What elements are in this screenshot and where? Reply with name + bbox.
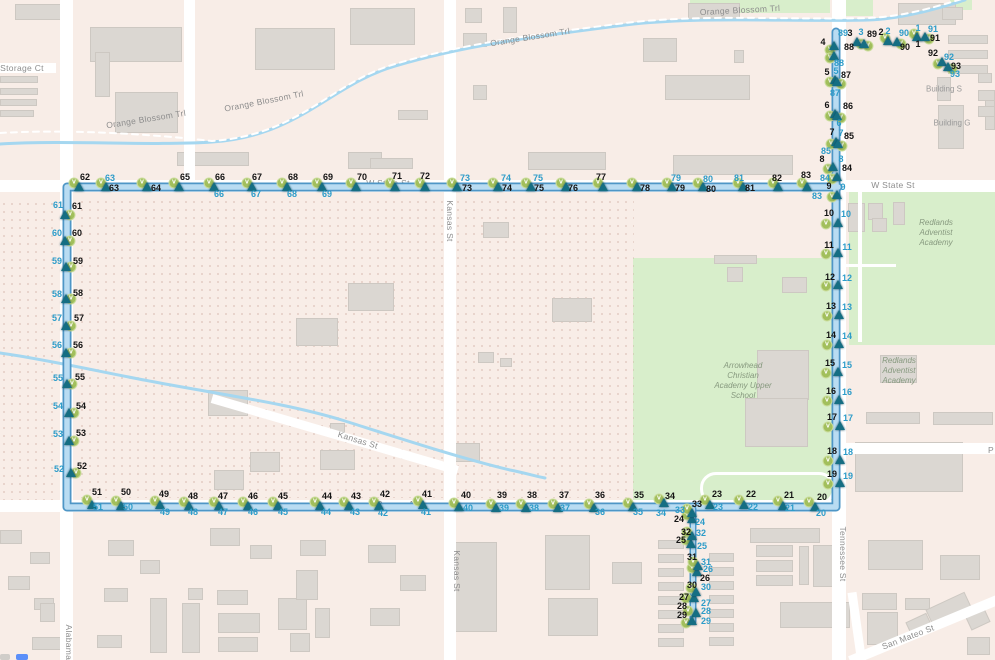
- building: [658, 582, 684, 591]
- waypoint-label-black-6: 6: [824, 100, 829, 110]
- waypoint-label-black-14: 14: [826, 330, 836, 340]
- waypoint-label-black-19: 19: [827, 469, 837, 479]
- waypoint-triangle-29[interactable]: [687, 616, 697, 625]
- waypoint-label-blue-25: 25: [697, 541, 707, 551]
- building: [948, 35, 988, 44]
- building: [709, 623, 734, 632]
- building: [370, 158, 413, 169]
- waypoint-label-blue-14: 14: [842, 331, 852, 341]
- waypoint-label-blue-10: 10: [841, 209, 851, 219]
- building: [140, 560, 160, 574]
- waypoint-label-blue-84: 84: [820, 173, 830, 183]
- building: [400, 575, 426, 591]
- building: [290, 633, 310, 652]
- building: [942, 7, 963, 20]
- waypoint-label-black-33: 33: [692, 499, 702, 509]
- street-label: Kansas St: [452, 550, 462, 591]
- building: [8, 576, 30, 590]
- waypoint-label-black-20: 20: [817, 492, 827, 502]
- building: [866, 412, 920, 424]
- waypoint-label-black-39: 39: [497, 490, 507, 500]
- road: [840, 443, 995, 454]
- terrain-dots: [78, 198, 634, 498]
- waypoint-label-black-45: 45: [278, 491, 288, 501]
- waypoint-label-black-31: 31: [687, 552, 697, 562]
- building: [188, 588, 203, 600]
- waypoint-triangle-53[interactable]: [64, 436, 74, 445]
- building-label: Building S: [926, 85, 962, 94]
- building: [709, 581, 734, 590]
- building: [548, 598, 598, 636]
- waypoint-triangle-8[interactable]: [828, 162, 838, 171]
- waypoint-label-black-62: 62: [80, 172, 90, 182]
- waypoint-label-blue-43: 43: [350, 507, 360, 517]
- building: [756, 560, 793, 572]
- waypoint-label-black-68: 68: [288, 172, 298, 182]
- waypoint-label-blue-32: 32: [696, 528, 706, 538]
- waypoint-label-black-77: 77: [596, 172, 606, 182]
- camera-marker-11[interactable]: v: [821, 249, 832, 260]
- waypoint-label-blue-31: 31: [701, 557, 711, 567]
- waypoint-label-blue-85: 85: [821, 146, 831, 156]
- waypoint-label-blue-90: 90: [899, 28, 909, 38]
- camera-marker-16[interactable]: v: [822, 396, 833, 407]
- building: [465, 8, 482, 23]
- waypoint-label-blue-79: 79: [671, 173, 681, 183]
- waypoint-label-black-78: 78: [640, 183, 650, 193]
- waypoint-label-blue-23: 23: [713, 502, 723, 512]
- waypoint-label-black-29: 29: [677, 610, 687, 620]
- waypoint-label-black-90: 90: [900, 42, 910, 52]
- building: [978, 90, 995, 101]
- building: [104, 588, 128, 602]
- street-label: Orange Blossom Trl: [224, 88, 305, 113]
- park-area: [845, 0, 873, 16]
- street-label: Alabama St: [64, 625, 74, 660]
- building: [210, 528, 240, 546]
- waypoint-triangle-83[interactable]: [802, 182, 812, 191]
- building: [727, 267, 743, 282]
- waypoint-label-black-30: 30: [687, 580, 697, 590]
- building: [709, 637, 734, 646]
- waypoint-label-blue-51: 51: [93, 502, 103, 512]
- waypoint-label-black-82: 82: [772, 173, 782, 183]
- building: [868, 540, 923, 570]
- waypoint-label-blue-9: 9: [840, 182, 845, 192]
- waypoint-triangle-82[interactable]: [773, 182, 783, 191]
- road: [858, 192, 862, 342]
- building: [528, 152, 606, 170]
- waypoint-label-blue-69: 69: [322, 189, 332, 199]
- building: [552, 298, 592, 322]
- building: [398, 110, 428, 120]
- building: [782, 277, 807, 293]
- waypoint-label-black-34: 34: [665, 491, 675, 501]
- waypoint-label-black-61: 61: [72, 201, 82, 211]
- building: [0, 99, 37, 106]
- waypoint-label-black-63: 63: [109, 183, 119, 193]
- place-label: RedlandsAdventistAcademy: [882, 356, 916, 386]
- building: [745, 398, 808, 447]
- waypoint-triangle-59[interactable]: [61, 262, 71, 271]
- waypoint-label-black-64: 64: [151, 183, 161, 193]
- waypoint-label-black-22: 22: [746, 489, 756, 499]
- waypoint-label-blue-60: 60: [52, 228, 62, 238]
- waypoint-label-blue-34: 34: [656, 508, 666, 518]
- building: [483, 222, 509, 238]
- building: [750, 528, 820, 543]
- waypoint-label-blue-16: 16: [842, 387, 852, 397]
- camera-marker-13[interactable]: v: [822, 311, 833, 322]
- waypoint-label-blue-2: 2: [885, 26, 890, 36]
- waypoint-triangle-25[interactable]: [686, 539, 696, 548]
- waypoint-label-black-73: 73: [462, 183, 472, 193]
- waypoint-label-black-56: 56: [73, 340, 83, 350]
- waypoint-label-blue-7: 7: [838, 128, 843, 138]
- street-label: Storage Ct: [0, 63, 44, 73]
- waypoint-label-blue-46: 46: [248, 507, 258, 517]
- waypoint-label-black-11: 11: [824, 240, 834, 250]
- waypoint-triangle-52[interactable]: [66, 468, 76, 477]
- building: [296, 318, 338, 346]
- partial-ui-chip: [16, 654, 28, 660]
- waypoint-label-black-23: 23: [712, 489, 722, 499]
- waypoint-label-blue-24: 24: [695, 517, 705, 527]
- waypoint-triangle-89[interactable]: [859, 39, 869, 48]
- waypoint-label-blue-29: 29: [701, 616, 711, 626]
- waypoint-label-black-70: 70: [357, 172, 367, 182]
- building: [940, 555, 980, 580]
- waypoint-label-black-74: 74: [502, 183, 512, 193]
- waypoint-label-black-17: 17: [827, 412, 837, 422]
- building: [320, 450, 355, 470]
- waypoint-label-blue-58: 58: [52, 289, 62, 299]
- waypoint-label-black-37: 37: [559, 490, 569, 500]
- waypoint-label-blue-37: 37: [560, 503, 570, 513]
- building: [350, 8, 415, 45]
- waypoint-label-black-1: 1: [915, 39, 920, 49]
- building: [278, 598, 307, 630]
- waypoint-label-blue-28: 28: [701, 606, 711, 616]
- waypoint-label-blue-22: 22: [748, 502, 758, 512]
- building: [218, 613, 260, 633]
- road: [838, 264, 896, 267]
- building: [658, 638, 684, 647]
- waypoint-label-black-43: 43: [351, 491, 361, 501]
- waypoint-label-black-58: 58: [73, 288, 83, 298]
- waypoint-label-blue-15: 15: [842, 360, 852, 370]
- waypoint-label-blue-50: 50: [123, 502, 133, 512]
- building: [545, 535, 590, 590]
- waypoint-label-blue-91: 91: [928, 24, 938, 34]
- waypoint-label-black-80: 80: [706, 184, 716, 194]
- building: [296, 570, 318, 600]
- waypoint-label-blue-40: 40: [463, 503, 473, 513]
- building: [348, 283, 394, 311]
- waypoint-label-black-67: 67: [252, 172, 262, 182]
- waypoint-label-blue-73: 73: [460, 173, 470, 183]
- waypoint-triangle-84[interactable]: [832, 172, 842, 181]
- waypoint-triangle-73[interactable]: [452, 182, 462, 191]
- waypoint-label-blue-89: 89: [838, 28, 848, 38]
- waypoint-label-black-53: 53: [76, 428, 86, 438]
- waypoint-triangle-57[interactable]: [61, 321, 71, 330]
- waypoint-label-black-55: 55: [75, 372, 85, 382]
- building: [478, 352, 494, 363]
- waypoint-label-black-91: 91: [930, 33, 940, 43]
- waypoint-label-black-57: 57: [74, 313, 84, 323]
- waypoint-label-black-24: 24: [674, 514, 684, 524]
- street-label: W State St: [871, 180, 915, 190]
- waypoint-label-blue-66: 66: [214, 189, 224, 199]
- waypoint-label-blue-3: 3: [858, 27, 863, 37]
- waypoint-triangle-70[interactable]: [351, 182, 361, 191]
- building: [658, 568, 684, 577]
- waypoint-label-black-2: 2: [878, 27, 883, 37]
- waypoint-label-blue-83: 83: [812, 191, 822, 201]
- building: [872, 218, 887, 232]
- waypoint-label-blue-81: 81: [734, 173, 744, 183]
- waypoint-label-black-79: 79: [675, 183, 685, 193]
- building: [0, 88, 38, 95]
- waypoint-label-blue-12: 12: [842, 273, 852, 283]
- waypoint-label-black-84: 84: [842, 163, 852, 173]
- waypoint-triangle-71[interactable]: [390, 182, 400, 191]
- waypoint-label-blue-68: 68: [287, 189, 297, 199]
- building: [0, 76, 38, 83]
- waypoint-label-blue-6: 6: [836, 118, 841, 128]
- building: [463, 33, 487, 47]
- building: [368, 545, 396, 563]
- waypoint-label-black-89: 89: [867, 29, 877, 39]
- waypoint-label-black-32: 32: [681, 527, 691, 537]
- camera-marker-17[interactable]: v: [823, 422, 834, 433]
- building: [665, 75, 750, 100]
- waypoint-label-black-42: 42: [380, 489, 390, 499]
- waypoint-label-black-76: 76: [568, 183, 578, 193]
- waypoint-label-blue-44: 44: [321, 507, 331, 517]
- waypoint-label-blue-21: 21: [785, 503, 795, 513]
- building: [933, 412, 993, 425]
- waypoint-label-black-88: 88: [844, 42, 854, 52]
- waypoint-triangle-56[interactable]: [61, 348, 71, 357]
- waypoint-label-black-3: 3: [847, 28, 852, 38]
- waypoint-label-black-16: 16: [826, 386, 836, 396]
- building: [473, 85, 487, 100]
- waypoint-label-blue-75: 75: [533, 173, 543, 183]
- waypoint-label-black-44: 44: [322, 491, 332, 501]
- waypoint-label-blue-59: 59: [52, 256, 62, 266]
- building: [799, 546, 809, 585]
- building: [250, 545, 272, 559]
- waypoint-label-blue-57: 57: [52, 313, 62, 323]
- building: [0, 110, 34, 117]
- building: [370, 608, 400, 626]
- building: [40, 603, 55, 622]
- building: [734, 50, 744, 63]
- waypoint-label-blue-63: 63: [105, 173, 115, 183]
- building: [709, 595, 734, 604]
- waypoint-triangle-62[interactable]: [74, 182, 84, 191]
- building: [97, 635, 122, 648]
- camera-marker-10[interactable]: v: [821, 219, 832, 230]
- waypoint-label-blue-61: 61: [53, 200, 63, 210]
- waypoint-label-blue-35: 35: [633, 507, 643, 517]
- waypoint-label-blue-13: 13: [842, 302, 852, 312]
- road: [184, 0, 195, 185]
- building: [893, 202, 905, 225]
- waypoint-label-blue-54: 54: [53, 401, 63, 411]
- building: [978, 73, 992, 83]
- street-label: P: [988, 445, 994, 455]
- camera-marker-14[interactable]: v: [822, 340, 833, 351]
- waypoint-label-blue-52: 52: [54, 464, 64, 474]
- waypoint-label-black-65: 65: [180, 172, 190, 182]
- building: [612, 562, 642, 584]
- waypoint-label-black-54: 54: [76, 401, 86, 411]
- waypoint-label-black-49: 49: [159, 489, 169, 499]
- building: [643, 38, 677, 62]
- waypoint-label-blue-47: 47: [218, 507, 228, 517]
- waypoint-label-blue-39: 39: [499, 503, 509, 513]
- waypoint-label-black-51: 51: [92, 487, 102, 497]
- building: [0, 530, 22, 544]
- waypoint-label-black-18: 18: [827, 446, 837, 456]
- map-canvas[interactable]: Storage CtOrange Blossom TrlOrange Bloss…: [0, 0, 995, 660]
- place-label: ArrowheadChristianAcademy UpperSchool: [714, 361, 771, 401]
- waypoint-triangle-10[interactable]: [833, 218, 843, 227]
- waypoint-triangle-55[interactable]: [62, 379, 72, 388]
- waypoint-label-blue-1: 1: [915, 23, 920, 33]
- waypoint-label-blue-20: 20: [816, 508, 826, 518]
- waypoint-label-blue-56: 56: [52, 340, 62, 350]
- terrain-dots: [0, 200, 58, 500]
- waypoint-label-black-60: 60: [72, 228, 82, 238]
- waypoint-triangle-58[interactable]: [61, 294, 71, 303]
- building: [503, 7, 517, 33]
- building: [673, 155, 793, 175]
- waypoint-triangle-72[interactable]: [420, 182, 430, 191]
- waypoint-label-black-72: 72: [420, 171, 430, 181]
- waypoint-label-black-66: 66: [215, 172, 225, 182]
- waypoint-label-blue-55: 55: [53, 373, 63, 383]
- waypoint-label-black-35: 35: [634, 490, 644, 500]
- waypoint-triangle-4[interactable]: [829, 41, 839, 50]
- waypoint-label-blue-67: 67: [251, 189, 261, 199]
- building: [967, 637, 990, 655]
- waypoint-label-blue-41: 41: [421, 507, 431, 517]
- waypoint-label-blue-11: 11: [842, 242, 852, 252]
- waypoint-label-black-12: 12: [825, 272, 835, 282]
- place-label: RedlandsAdventistAcademy: [919, 218, 953, 248]
- waypoint-label-blue-38: 38: [529, 503, 539, 513]
- building: [756, 575, 793, 586]
- building: [95, 52, 110, 97]
- waypoint-label-black-83: 83: [801, 170, 811, 180]
- waypoint-label-black-36: 36: [595, 490, 605, 500]
- waypoint-triangle-85[interactable]: [833, 139, 843, 148]
- building: [30, 552, 50, 564]
- waypoint-label-black-46: 46: [248, 491, 258, 501]
- waypoint-label-black-38: 38: [527, 490, 537, 500]
- building-label: Building G: [934, 119, 971, 128]
- street-label: Tennessee St: [838, 526, 848, 581]
- building: [32, 637, 62, 650]
- waypoint-label-black-81: 81: [745, 183, 755, 193]
- waypoint-label-blue-18: 18: [843, 447, 853, 457]
- building: [255, 28, 335, 70]
- camera-marker-19[interactable]: v: [823, 479, 834, 490]
- building: [217, 590, 248, 605]
- building: [714, 255, 757, 264]
- building: [182, 603, 200, 653]
- waypoint-triangle-61[interactable]: [60, 210, 70, 219]
- building: [455, 443, 480, 462]
- waypoint-label-black-7: 7: [829, 127, 834, 137]
- waypoint-label-blue-19: 19: [843, 471, 853, 481]
- building: [150, 598, 167, 653]
- camera-marker-12[interactable]: v: [821, 281, 832, 292]
- waypoint-label-blue-74: 74: [501, 173, 511, 183]
- waypoint-label-black-4: 4: [820, 37, 825, 47]
- building: [300, 540, 326, 556]
- waypoint-label-blue-48: 48: [188, 507, 198, 517]
- building: [214, 470, 244, 490]
- partial-ui-chip: [0, 654, 10, 660]
- building: [862, 593, 897, 610]
- waypoint-label-black-52: 52: [77, 461, 87, 471]
- waypoint-triangle-65[interactable]: [174, 182, 184, 191]
- waypoint-label-black-40: 40: [461, 490, 471, 500]
- waypoint-label-blue-87: 87: [830, 88, 840, 98]
- building: [978, 106, 995, 117]
- camera-marker-15[interactable]: v: [821, 368, 832, 379]
- waypoint-label-blue-36: 36: [595, 507, 605, 517]
- waypoint-label-black-50: 50: [121, 487, 131, 497]
- waypoint-label-black-71: 71: [392, 171, 402, 181]
- waypoint-label-blue-88: 88: [834, 58, 844, 68]
- building: [709, 609, 734, 618]
- waypoint-label-black-92: 92: [928, 48, 938, 58]
- waypoint-label-blue-93: 93: [950, 69, 960, 79]
- building: [315, 608, 330, 638]
- waypoint-label-blue-42: 42: [378, 508, 388, 518]
- building: [500, 358, 512, 367]
- waypoint-label-blue-49: 49: [160, 507, 170, 517]
- waypoint-label-black-48: 48: [188, 491, 198, 501]
- waypoint-label-blue-80: 80: [703, 174, 713, 184]
- building: [250, 452, 280, 472]
- waypoint-label-black-13: 13: [826, 301, 836, 311]
- waypoint-triangle-33[interactable]: [687, 508, 697, 517]
- camera-marker-18[interactable]: v: [823, 456, 834, 467]
- waypoint-label-blue-30: 30: [701, 582, 711, 592]
- building: [756, 545, 793, 557]
- waypoint-label-black-59: 59: [73, 256, 83, 266]
- waypoint-triangle-77[interactable]: [598, 182, 608, 191]
- street-label: Orange Blossom Trl: [489, 26, 570, 48]
- waypoint-label-black-86: 86: [843, 101, 853, 111]
- waypoint-triangle-54[interactable]: [64, 408, 74, 417]
- building: [218, 637, 258, 652]
- building: [709, 553, 734, 562]
- waypoint-label-black-87: 87: [841, 70, 851, 80]
- street-label: Kansas St: [445, 200, 455, 241]
- waypoint-label-black-75: 75: [534, 183, 544, 193]
- waypoint-label-blue-33: 33: [675, 505, 685, 515]
- waypoint-label-black-47: 47: [218, 491, 228, 501]
- building: [658, 554, 684, 563]
